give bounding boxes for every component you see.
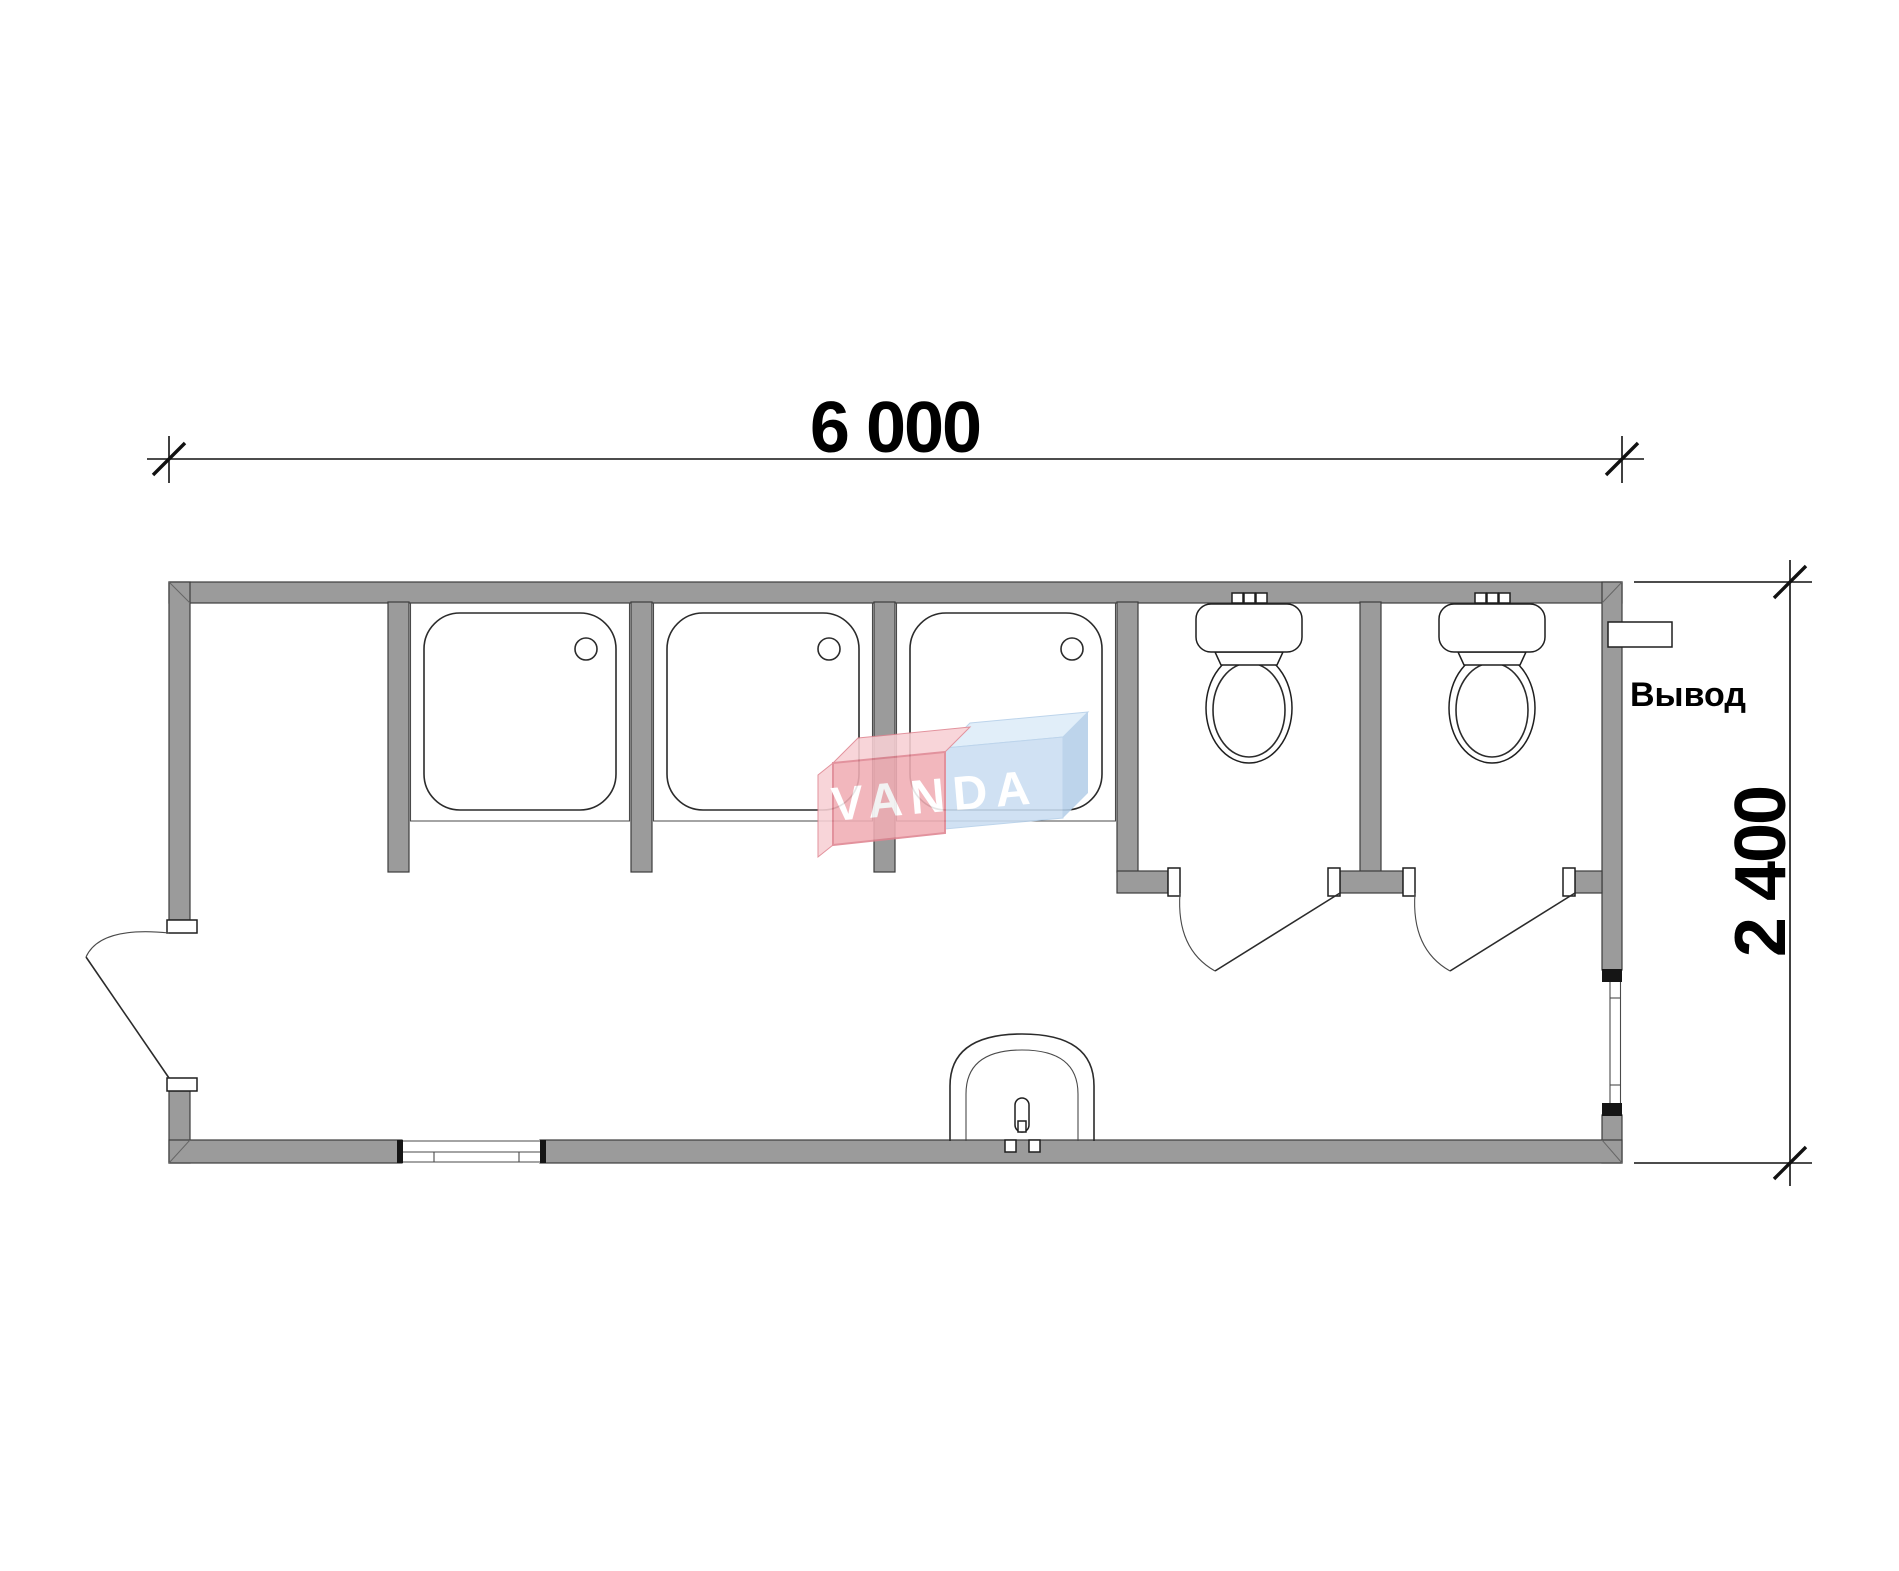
utility-outlet: Вывод	[1608, 622, 1746, 714]
door-swing-arc	[1180, 893, 1215, 971]
wc-door-2	[1403, 868, 1575, 971]
toilet-cistern	[1196, 604, 1302, 652]
door-jamb	[1563, 868, 1575, 896]
door-jamb	[1328, 868, 1340, 896]
flush-button	[1256, 593, 1267, 603]
width-dimension-label: 6 000	[810, 388, 980, 468]
washbasin	[950, 1034, 1094, 1152]
wall-bottom-right	[540, 1140, 1622, 1163]
faucet-base	[1018, 1121, 1026, 1132]
wc-front-wall-segment-2	[1340, 871, 1403, 893]
door-swing-arc	[86, 932, 169, 957]
basin-mount	[1005, 1140, 1016, 1152]
toilet-seat	[1449, 653, 1535, 763]
shower-stall-1	[410, 603, 630, 821]
toilet-cistern	[1439, 604, 1545, 652]
toilet-1	[1196, 593, 1302, 763]
depth-dimension-label: 2 400	[1721, 787, 1801, 957]
wall-top	[169, 582, 1622, 603]
wc-front-wall-segment-3	[1575, 871, 1602, 893]
drain-hole	[575, 638, 597, 660]
outlet-label: Вывод	[1630, 676, 1746, 714]
door-leaf	[86, 957, 169, 1078]
wc-door-1	[1168, 868, 1340, 971]
flush-button	[1244, 593, 1255, 603]
door-jamb	[1403, 868, 1415, 896]
door-leaf	[1450, 893, 1575, 971]
toilet-2	[1439, 593, 1545, 763]
entrance-door	[86, 920, 197, 1091]
basin-mount	[1029, 1140, 1040, 1152]
partition-5	[1360, 602, 1381, 872]
toilet-connector	[1458, 652, 1526, 665]
floor-plan-drawing: 6 000 2 400	[0, 0, 1899, 1571]
door-threshold	[167, 1078, 197, 1091]
partition-1	[388, 602, 409, 872]
depth-dimension: 2 400	[1634, 560, 1812, 1186]
window-bottom	[397, 1140, 546, 1163]
window-end-cap	[1602, 1103, 1622, 1116]
window-end-cap	[397, 1140, 403, 1163]
toilet-connector	[1215, 652, 1283, 665]
door-threshold	[167, 920, 197, 933]
window-end-cap	[540, 1140, 546, 1163]
wall-left-upper	[169, 582, 190, 920]
logo-box-red-side	[818, 763, 833, 857]
partition-4	[1117, 602, 1138, 872]
floor-plan-page: 6 000 2 400	[0, 0, 1899, 1571]
window-right	[1602, 969, 1622, 1116]
shower-tray	[424, 613, 616, 810]
window-end-cap	[1602, 969, 1622, 982]
toilet-seat	[1206, 653, 1292, 763]
wc-front-wall-segment-1	[1117, 871, 1168, 893]
drain-hole	[1061, 638, 1083, 660]
outlet-symbol	[1608, 622, 1672, 647]
partition-2	[631, 602, 652, 872]
wall-bottom-left	[169, 1140, 402, 1163]
width-dimension: 6 000	[147, 388, 1644, 483]
door-swing-arc	[1415, 893, 1450, 971]
flush-button	[1475, 593, 1486, 603]
flush-button	[1232, 593, 1243, 603]
door-leaf	[1215, 893, 1340, 971]
flush-button	[1487, 593, 1498, 603]
door-jamb	[1168, 868, 1180, 896]
drain-hole	[818, 638, 840, 660]
flush-button	[1499, 593, 1510, 603]
